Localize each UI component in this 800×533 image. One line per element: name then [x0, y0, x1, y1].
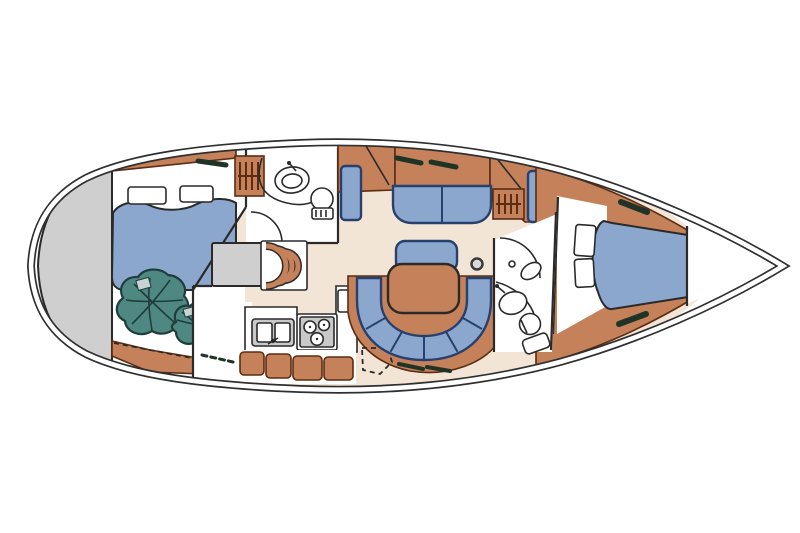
- berth-pillow: [574, 224, 596, 256]
- galley-sink: [252, 319, 294, 346]
- stove: [297, 314, 337, 350]
- toilet: [311, 188, 333, 219]
- berth-pillow: [128, 187, 166, 204]
- mast-post: [472, 259, 483, 270]
- door-knob: [509, 261, 515, 267]
- hanging-locker: [493, 189, 524, 219]
- storage-lockers: [240, 352, 353, 380]
- galley-floor: [193, 286, 245, 386]
- engine-box: [212, 243, 264, 286]
- salon-table: [388, 264, 459, 313]
- boat-floor-plan: [0, 0, 800, 533]
- v-berth: [593, 221, 688, 309]
- floor-plan-canvas: [0, 0, 800, 533]
- berth-pillow: [574, 258, 594, 287]
- settee-end-panel: [341, 166, 361, 220]
- stern-platform: [38, 160, 112, 372]
- berth-pillow: [180, 186, 213, 202]
- port-settee: [393, 186, 491, 223]
- companionway-steps: [261, 241, 307, 290]
